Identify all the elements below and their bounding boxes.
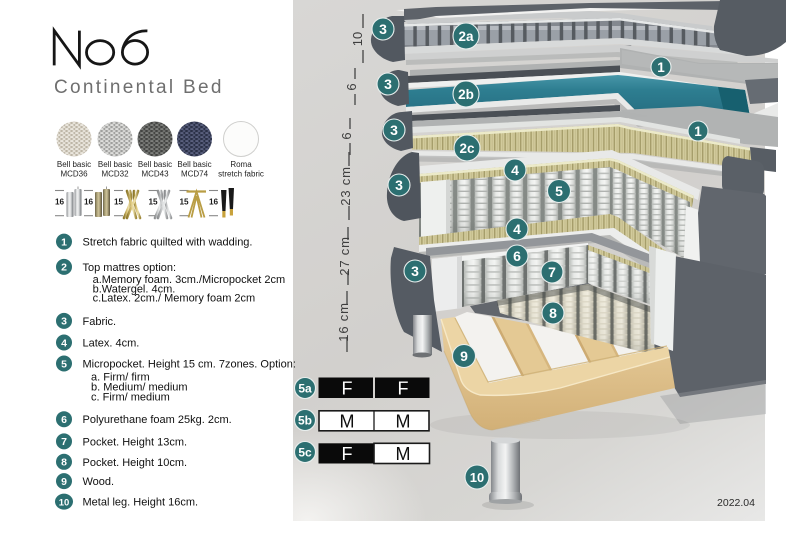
svg-text:6: 6 <box>344 83 359 90</box>
svg-text:16 cm: 16 cm <box>336 302 351 341</box>
svg-text:8: 8 <box>61 457 67 469</box>
svg-text:4: 4 <box>511 162 519 178</box>
svg-text:1: 1 <box>61 236 67 248</box>
svg-text:MCD32: MCD32 <box>101 170 129 179</box>
svg-text:2022.04: 2022.04 <box>717 497 755 509</box>
svg-text:Stretch fabric quilted with wa: Stretch fabric quilted with wadding. <box>83 237 253 249</box>
svg-text:Continental Bed: Continental Bed <box>54 77 224 98</box>
svg-text:Pocket. Height 13cm.: Pocket. Height 13cm. <box>83 436 188 448</box>
svg-text:27 cm: 27 cm <box>337 236 352 275</box>
svg-text:M: M <box>396 411 411 431</box>
svg-text:Fabric.: Fabric. <box>83 316 117 328</box>
svg-text:2c: 2c <box>459 141 475 156</box>
svg-text:9: 9 <box>61 476 67 488</box>
svg-text:3: 3 <box>390 122 398 138</box>
svg-text:15: 15 <box>114 198 124 207</box>
svg-text:3: 3 <box>61 316 67 328</box>
svg-text:10: 10 <box>59 497 70 508</box>
svg-text:Bell basic: Bell basic <box>177 160 211 169</box>
svg-text:Bell basic: Bell basic <box>138 160 172 169</box>
svg-text:M: M <box>396 444 411 464</box>
svg-text:c. Firm/ medium: c. Firm/ medium <box>91 392 170 404</box>
svg-text:15: 15 <box>148 198 158 207</box>
svg-text:6: 6 <box>513 248 521 264</box>
svg-text:2b: 2b <box>458 87 474 102</box>
svg-text:4: 4 <box>61 337 67 349</box>
svg-text:15: 15 <box>179 198 189 207</box>
svg-text:1: 1 <box>694 124 702 139</box>
svg-text:Top mattres option:: Top mattres option: <box>83 262 177 274</box>
svg-text:3: 3 <box>379 21 387 37</box>
svg-text:16: 16 <box>209 198 219 207</box>
svg-text:3: 3 <box>411 263 419 279</box>
svg-text:7: 7 <box>61 436 67 448</box>
svg-text:Bell basic: Bell basic <box>57 160 91 169</box>
svg-text:Micropocket. Height 15 cm. 7zo: Micropocket. Height 15 cm. 7zones. Optio… <box>83 359 296 371</box>
svg-text:16: 16 <box>55 198 65 207</box>
svg-text:M: M <box>340 411 355 431</box>
svg-text:4: 4 <box>513 221 521 237</box>
svg-text:5: 5 <box>61 358 67 370</box>
svg-text:3: 3 <box>395 177 403 193</box>
svg-text:MCD36: MCD36 <box>60 170 88 179</box>
svg-text:5c: 5c <box>298 446 312 460</box>
svg-text:6: 6 <box>339 132 354 139</box>
svg-text:c.Latex. 2cm./ Memory foam 2cm: c.Latex. 2cm./ Memory foam 2cm <box>93 293 256 305</box>
svg-text:6: 6 <box>61 414 67 426</box>
svg-text:2: 2 <box>61 262 67 274</box>
svg-text:Bell basic: Bell basic <box>98 160 132 169</box>
svg-text:MCD43: MCD43 <box>141 170 169 179</box>
svg-text:7: 7 <box>548 264 556 280</box>
svg-text:Metal leg. Height 16cm.: Metal leg. Height 16cm. <box>83 497 199 509</box>
svg-text:9: 9 <box>460 348 468 364</box>
svg-text:2a: 2a <box>458 29 474 44</box>
svg-text:16: 16 <box>84 198 94 207</box>
svg-text:3: 3 <box>384 76 392 92</box>
svg-text:MCD74: MCD74 <box>181 170 209 179</box>
svg-text:23 cm: 23 cm <box>338 166 353 205</box>
svg-text:F: F <box>398 379 409 399</box>
svg-text:8: 8 <box>549 305 557 321</box>
svg-text:5b: 5b <box>298 414 312 428</box>
svg-text:F: F <box>342 444 353 464</box>
svg-text:5: 5 <box>555 183 563 199</box>
svg-text:10: 10 <box>350 32 365 46</box>
svg-text:Roma: Roma <box>230 160 252 169</box>
svg-text:Latex. 4cm.: Latex. 4cm. <box>83 338 140 350</box>
svg-text:Pocket. Height 10cm.: Pocket. Height 10cm. <box>83 457 188 469</box>
svg-text:stretch fabric: stretch fabric <box>218 170 264 179</box>
svg-text:Polyurethane foam 25kg. 2cm.: Polyurethane foam 25kg. 2cm. <box>83 414 232 426</box>
svg-text:5a: 5a <box>298 382 312 396</box>
svg-text:10: 10 <box>470 470 484 485</box>
svg-text:1: 1 <box>657 60 665 75</box>
svg-text:Wood.: Wood. <box>83 476 115 488</box>
svg-text:F: F <box>342 379 353 399</box>
